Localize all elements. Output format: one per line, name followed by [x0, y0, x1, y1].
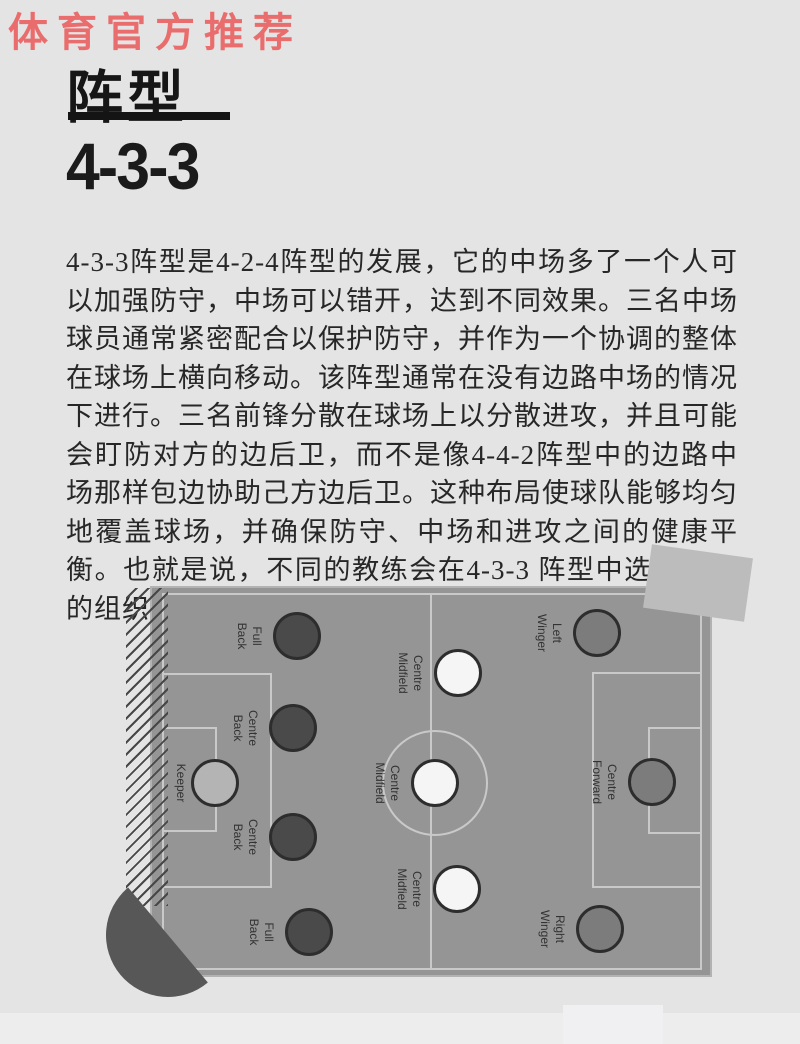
player-label: CentreMidfield [363, 753, 411, 813]
player-marker-centre-forward [628, 758, 676, 806]
player-marker-centre-midfield [434, 649, 482, 697]
player-label: CentreForward [580, 752, 628, 812]
player-label: CentreMidfield [385, 859, 433, 919]
player-label: CentreBack [221, 807, 269, 867]
player-label: LeftWinger [525, 603, 573, 663]
bottom-patch [563, 1005, 663, 1044]
formation-name-heading: 4-3-3 [66, 128, 199, 204]
watermark-text: 体育官方推荐 [8, 0, 302, 58]
player-label: FullBack [237, 902, 285, 962]
player-marker-centre-back [269, 813, 317, 861]
page-title: 阵型 [66, 52, 188, 134]
player-marker-right-winger [576, 905, 624, 953]
player-label: CentreMidfield [386, 643, 434, 703]
bottom-band [0, 1013, 800, 1044]
infographic-page: 体育官方推荐 阵型 4-3-3 4-3-3阵型是4-2-4阵型的发展，它的中场多… [0, 0, 800, 1044]
formation-description: 4-3-3阵型是4-2-4阵型的发展，它的中场多了一个人可以加强防守，中场可以错… [66, 243, 738, 628]
player-marker-full-back [273, 612, 321, 660]
player-marker-centre-midfield [433, 865, 481, 913]
player-label: CentreBack [221, 698, 269, 758]
player-marker-left-winger [573, 609, 621, 657]
player-marker-centre-midfield [411, 759, 459, 807]
player-marker-full-back [285, 908, 333, 956]
player-marker-centre-back [269, 704, 317, 752]
hatch-decoration [126, 588, 168, 906]
player-label: FullBack [225, 606, 273, 666]
player-label: RightWinger [528, 899, 576, 959]
title-underline [68, 112, 230, 120]
